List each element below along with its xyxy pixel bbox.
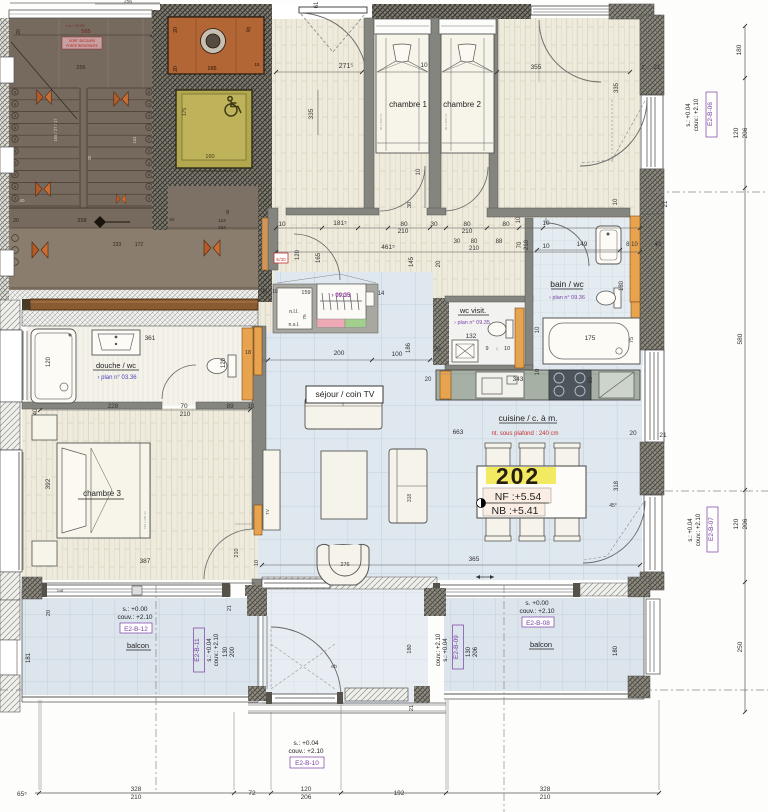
svg-text:89: 89 bbox=[226, 403, 234, 410]
svg-text:565: 565 bbox=[81, 29, 90, 35]
svg-text:387: 387 bbox=[140, 558, 151, 565]
svg-text:80: 80 bbox=[463, 221, 471, 228]
svg-text:› plan n° 09.35: › plan n° 09.35 bbox=[454, 320, 490, 326]
svg-text:couv.: +2.10: couv.: +2.10 bbox=[694, 98, 700, 131]
svg-text:30: 30 bbox=[430, 221, 438, 228]
svg-text:80 x 200 cm: 80 x 200 cm bbox=[444, 113, 448, 130]
svg-text:210: 210 bbox=[131, 794, 142, 801]
svg-text:20: 20 bbox=[436, 260, 442, 267]
svg-text:180: 180 bbox=[736, 44, 743, 55]
svg-text:45: 45 bbox=[225, 209, 230, 215]
svg-text:E2-B-07: E2-B-07 bbox=[708, 517, 715, 541]
svg-text:couv.: +2.10: couv.: +2.10 bbox=[214, 633, 220, 666]
svg-text:343: 343 bbox=[513, 376, 524, 383]
svg-text:159: 159 bbox=[301, 290, 310, 296]
svg-text:80: 80 bbox=[502, 221, 510, 228]
svg-text:21: 21 bbox=[663, 200, 669, 207]
svg-text:9: 9 bbox=[485, 346, 488, 352]
svg-text:41: 41 bbox=[654, 241, 662, 248]
svg-text:206: 206 bbox=[473, 646, 479, 657]
svg-text:70: 70 bbox=[180, 403, 188, 410]
svg-text:8 10: 8 10 bbox=[626, 242, 638, 248]
svg-text:s.: +0.04: s.: +0.04 bbox=[686, 103, 692, 127]
svg-text:318: 318 bbox=[407, 494, 413, 503]
svg-text:21: 21 bbox=[659, 432, 667, 439]
svg-text:233: 233 bbox=[113, 242, 122, 248]
svg-text:wc visit.: wc visit. bbox=[459, 306, 486, 315]
svg-text:172: 172 bbox=[135, 242, 144, 248]
svg-text:20: 20 bbox=[433, 346, 441, 353]
svg-text:180: 180 bbox=[619, 280, 625, 291]
svg-text:E2-B-10: E2-B-10 bbox=[295, 760, 319, 767]
svg-text:› plan n° 09.36: › plan n° 09.36 bbox=[549, 295, 585, 301]
svg-text:206: 206 bbox=[742, 518, 749, 529]
svg-text:328: 328 bbox=[540, 786, 551, 793]
svg-text:TV: TV bbox=[265, 509, 270, 515]
svg-text:20: 20 bbox=[173, 66, 179, 72]
svg-text:210: 210 bbox=[180, 411, 191, 418]
svg-text:160 / 27 / 17: 160 / 27 / 17 bbox=[53, 118, 58, 142]
svg-text:couv.: +2.10: couv.: +2.10 bbox=[288, 748, 323, 755]
svg-text:256: 256 bbox=[76, 65, 85, 71]
svg-text:120: 120 bbox=[733, 127, 740, 138]
svg-text:NB :+5.41: NB :+5.41 bbox=[492, 505, 539, 517]
svg-text:balcon: balcon bbox=[530, 640, 552, 649]
svg-text:165: 165 bbox=[316, 252, 322, 263]
svg-text:18: 18 bbox=[245, 350, 251, 356]
svg-text:120: 120 bbox=[221, 357, 227, 368]
svg-text:10: 10 bbox=[516, 216, 522, 223]
svg-text:234: 234 bbox=[218, 225, 226, 230]
svg-text:NF :+5.54: NF :+5.54 bbox=[495, 491, 542, 503]
svg-text:61: 61 bbox=[314, 1, 320, 8]
svg-text:Kit: Kit bbox=[170, 217, 176, 222]
svg-text:164: 164 bbox=[132, 136, 137, 144]
svg-text:180: 180 bbox=[407, 644, 413, 653]
svg-text:10: 10 bbox=[504, 346, 510, 352]
svg-text:couv.: +2.10: couv.: +2.10 bbox=[436, 633, 442, 666]
svg-text:132: 132 bbox=[466, 333, 477, 340]
svg-text:20: 20 bbox=[16, 29, 22, 35]
svg-text:335: 335 bbox=[614, 82, 620, 93]
svg-text:40: 40 bbox=[19, 198, 25, 203]
svg-text:181⁵: 181⁵ bbox=[333, 220, 347, 227]
svg-text:124: 124 bbox=[218, 218, 226, 223]
svg-text:séjour / coin TV: séjour / coin TV bbox=[316, 389, 375, 399]
svg-text:chambre 1: chambre 1 bbox=[389, 100, 427, 109]
svg-text:10: 10 bbox=[613, 198, 619, 205]
svg-text:chambre 2: chambre 2 bbox=[443, 100, 481, 109]
svg-text:256: 256 bbox=[124, 0, 133, 5]
svg-text:s.: +0.00: s.: +0.00 bbox=[122, 606, 147, 613]
svg-text:30: 30 bbox=[87, 155, 92, 160]
svg-text:nt. sous plafond : 240 cm: nt. sous plafond : 240 cm bbox=[491, 431, 558, 437]
svg-text:20: 20 bbox=[13, 218, 19, 224]
svg-text:461⁵: 461⁵ bbox=[381, 244, 395, 251]
svg-text:n.l.l.: n.l.l. bbox=[289, 309, 299, 315]
svg-text:580: 580 bbox=[737, 333, 744, 344]
svg-text:355: 355 bbox=[531, 64, 542, 71]
svg-text:10: 10 bbox=[272, 289, 278, 295]
svg-text:chambre 3: chambre 3 bbox=[83, 489, 121, 498]
svg-text:30: 30 bbox=[454, 239, 461, 245]
svg-text:75: 75 bbox=[302, 314, 308, 320]
svg-text:65⁵: 65⁵ bbox=[17, 791, 27, 798]
svg-text:80: 80 bbox=[471, 239, 478, 245]
svg-text:E2-B-08: E2-B-08 bbox=[526, 620, 550, 627]
svg-text:130: 130 bbox=[466, 646, 472, 657]
svg-text:365: 365 bbox=[469, 556, 480, 563]
svg-text:15: 15 bbox=[254, 62, 260, 67]
svg-text:› plan n° 03.36: › plan n° 03.36 bbox=[97, 375, 137, 381]
svg-text:210: 210 bbox=[462, 228, 473, 235]
svg-text:E2-B-09: E2-B-09 bbox=[453, 635, 460, 659]
svg-text:210: 210 bbox=[234, 548, 240, 557]
svg-text:80 x 200 cm: 80 x 200 cm bbox=[379, 113, 383, 130]
svg-text:SORT. SECOURS: SORT. SECOURS bbox=[69, 39, 95, 43]
svg-text:s.: +0.04: s.: +0.04 bbox=[207, 638, 213, 662]
svg-text:210: 210 bbox=[540, 794, 551, 801]
svg-text:21: 21 bbox=[409, 705, 415, 711]
svg-text:E2-B-11: E2-B-11 bbox=[194, 638, 201, 662]
svg-text:206: 206 bbox=[742, 127, 749, 138]
svg-text:70: 70 bbox=[517, 241, 523, 248]
svg-text:balcon: balcon bbox=[127, 641, 149, 650]
svg-text:392: 392 bbox=[45, 478, 52, 489]
svg-text:couv.: +2.10: couv.: +2.10 bbox=[519, 608, 554, 615]
svg-text:361: 361 bbox=[145, 335, 156, 342]
svg-text:10: 10 bbox=[542, 220, 550, 227]
svg-text:bain / wc: bain / wc bbox=[550, 279, 584, 289]
svg-text:s.: +0.04: s.: +0.04 bbox=[443, 638, 449, 662]
svg-text:10: 10 bbox=[420, 62, 428, 69]
svg-text:10: 10 bbox=[248, 404, 255, 410]
svg-text:couv.: +2.10: couv.: +2.10 bbox=[696, 513, 702, 546]
svg-text:E2-B-06: E2-B-06 bbox=[707, 102, 714, 126]
svg-text:181: 181 bbox=[26, 652, 32, 663]
svg-text:200: 200 bbox=[230, 646, 236, 657]
svg-text:30: 30 bbox=[407, 202, 413, 208]
svg-text:210: 210 bbox=[469, 246, 480, 252]
svg-text:335: 335 bbox=[308, 108, 315, 119]
svg-text:s.: +0.04: s.: +0.04 bbox=[688, 518, 694, 542]
svg-text:250: 250 bbox=[737, 641, 744, 652]
svg-text:10: 10 bbox=[535, 368, 541, 375]
svg-text:192: 192 bbox=[394, 790, 405, 797]
svg-text:45°: 45° bbox=[609, 503, 617, 509]
svg-text:210: 210 bbox=[398, 228, 409, 235]
svg-text:100: 100 bbox=[392, 351, 403, 358]
svg-text:175: 175 bbox=[585, 335, 596, 342]
svg-text:s.: +0.04: s.: +0.04 bbox=[293, 740, 318, 747]
svg-text:douche / wc: douche / wc bbox=[96, 361, 136, 370]
svg-text:10: 10 bbox=[254, 560, 260, 566]
svg-text:E/30: E/30 bbox=[276, 257, 286, 262]
svg-text:145: 145 bbox=[409, 256, 415, 267]
svg-text:200: 200 bbox=[334, 350, 345, 357]
svg-text:88: 88 bbox=[496, 239, 503, 245]
svg-text:couv.: +2.10: couv.: +2.10 bbox=[117, 614, 152, 621]
svg-text:328: 328 bbox=[131, 786, 142, 793]
svg-text:663: 663 bbox=[453, 429, 464, 436]
svg-text:40: 40 bbox=[33, 408, 39, 415]
svg-text:20: 20 bbox=[46, 610, 52, 616]
svg-text:180 x 200 cm: 180 x 200 cm bbox=[143, 510, 147, 529]
svg-text:PORTE RESISTANTE: PORTE RESISTANTE bbox=[66, 44, 98, 48]
svg-text:75: 75 bbox=[629, 337, 635, 343]
svg-text:228: 228 bbox=[108, 403, 119, 410]
svg-text:20: 20 bbox=[629, 430, 637, 437]
svg-text:› 09.35: › 09.35 bbox=[332, 293, 351, 299]
svg-text:175: 175 bbox=[182, 108, 188, 117]
svg-text:120: 120 bbox=[295, 249, 301, 260]
svg-text:20: 20 bbox=[173, 27, 179, 33]
svg-text:10: 10 bbox=[535, 326, 541, 333]
svg-text:n.s.l.: n.s.l. bbox=[289, 322, 300, 328]
svg-text:186: 186 bbox=[406, 342, 412, 353]
svg-text:cuisine / c. à m.: cuisine / c. à m. bbox=[498, 413, 557, 423]
svg-text:20: 20 bbox=[261, 289, 267, 295]
svg-text:« s : +2.70: « s : +2.70 bbox=[66, 23, 86, 28]
svg-text:21: 21 bbox=[653, 64, 661, 71]
svg-text:271⁵: 271⁵ bbox=[339, 63, 354, 70]
svg-text:21: 21 bbox=[227, 605, 233, 611]
svg-text:318: 318 bbox=[614, 480, 620, 491]
svg-text:s. +0.00: s. +0.00 bbox=[525, 600, 549, 607]
svg-text:120: 120 bbox=[46, 356, 52, 367]
svg-text:2: 2 bbox=[641, 65, 644, 71]
svg-text:130: 130 bbox=[223, 646, 229, 657]
svg-text:165: 165 bbox=[207, 66, 216, 72]
svg-text:1x8: 1x8 bbox=[57, 588, 64, 593]
svg-text:10: 10 bbox=[416, 168, 422, 175]
svg-text:10: 10 bbox=[542, 243, 550, 250]
svg-text:210: 210 bbox=[524, 239, 530, 250]
svg-text:120: 120 bbox=[733, 518, 740, 529]
svg-text:180: 180 bbox=[613, 645, 619, 656]
svg-text:10: 10 bbox=[278, 221, 286, 228]
svg-text:258: 258 bbox=[77, 218, 86, 224]
svg-text:206: 206 bbox=[301, 794, 312, 801]
svg-text:80: 80 bbox=[400, 221, 408, 228]
svg-text:E2-B-12: E2-B-12 bbox=[124, 626, 148, 633]
svg-text:160: 160 bbox=[205, 154, 214, 160]
svg-text:14: 14 bbox=[378, 291, 385, 297]
svg-text:120: 120 bbox=[301, 786, 312, 793]
svg-text:149: 149 bbox=[577, 241, 588, 248]
svg-text:60: 60 bbox=[588, 376, 594, 383]
svg-text:↓: ↓ bbox=[496, 346, 499, 352]
svg-text:eb: eb bbox=[331, 664, 337, 670]
svg-text:72: 72 bbox=[248, 790, 256, 797]
svg-text:20: 20 bbox=[425, 377, 432, 383]
svg-text:202: 202 bbox=[496, 463, 540, 489]
